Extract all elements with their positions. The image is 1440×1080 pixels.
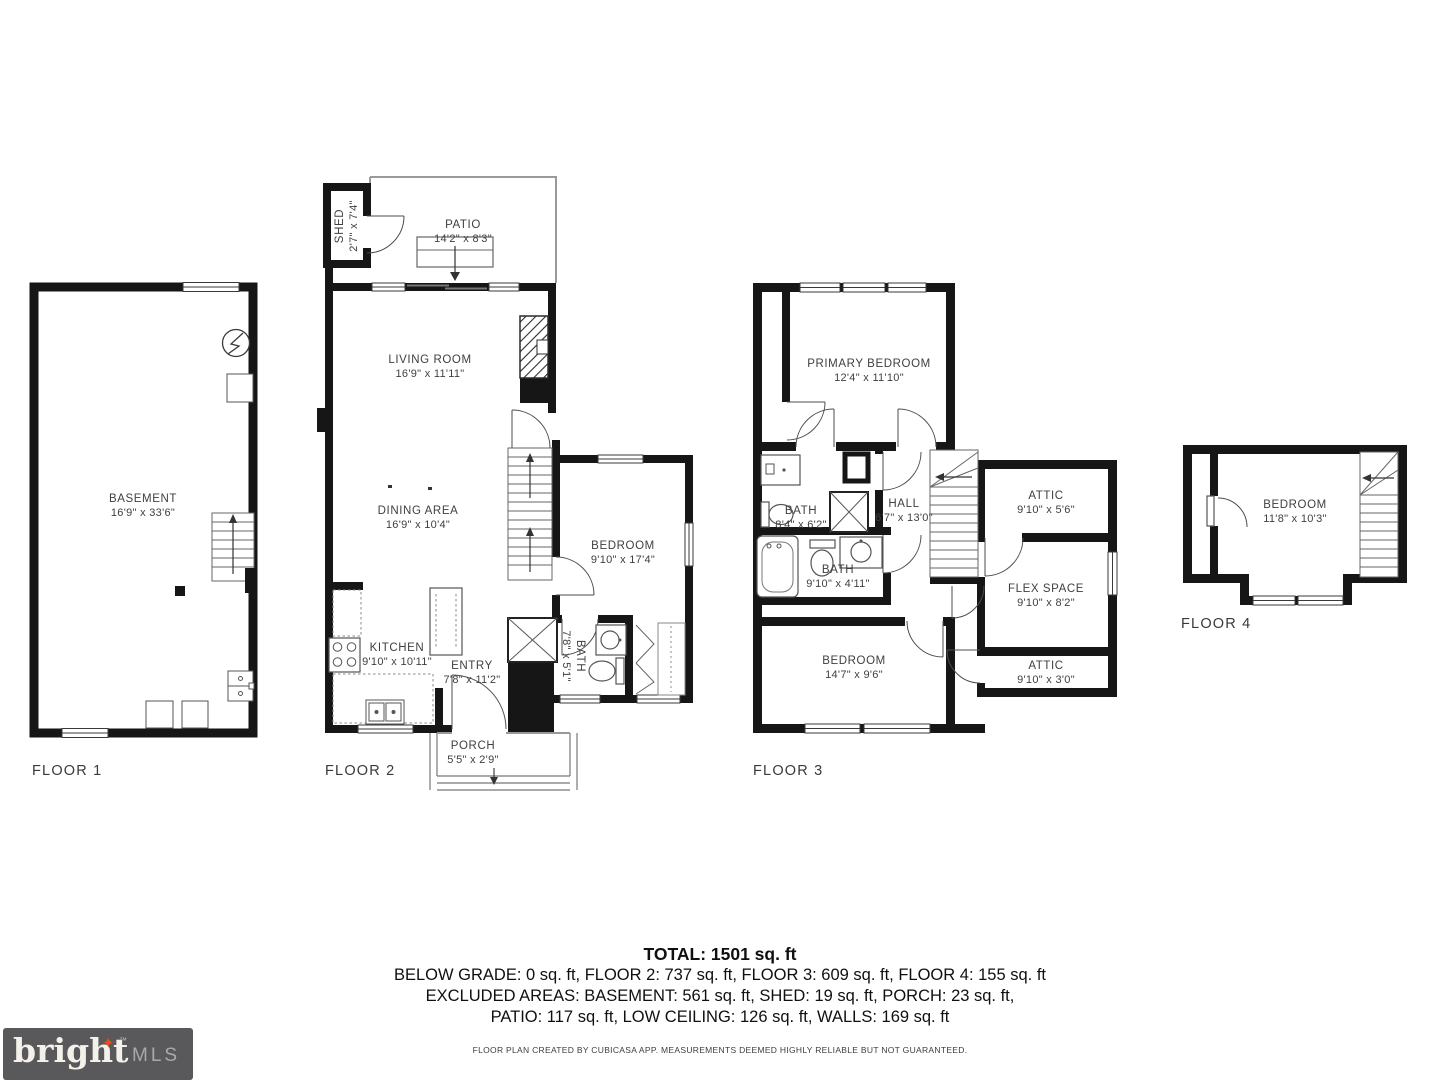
toilet-icon — [761, 502, 793, 527]
closet-icon — [636, 623, 685, 695]
toilet-icon — [589, 658, 624, 684]
bathtub-icon — [757, 536, 798, 597]
door-icon — [985, 538, 1023, 576]
door-icons — [367, 216, 598, 729]
window-icon — [1298, 596, 1343, 605]
stairs-icon — [212, 513, 257, 593]
electrical-panel-icon — [223, 330, 250, 357]
door-icon — [883, 452, 921, 490]
door-icon — [512, 410, 550, 448]
window-icon — [805, 724, 860, 733]
window-icon — [1253, 596, 1295, 605]
door-icon — [907, 621, 943, 657]
stairs-icon — [508, 448, 552, 580]
basement-walls — [34, 287, 253, 733]
floor-2-plan — [317, 177, 693, 790]
area-line-2: EXCLUDED AREAS: BASEMENT: 561 sq. ft, SH… — [0, 986, 1440, 1007]
ceiling-marker — [388, 485, 392, 488]
ceiling-marker — [428, 487, 432, 490]
window-icon — [183, 283, 239, 292]
floor-4-plan — [1183, 445, 1407, 605]
utility-sink-icon — [228, 671, 254, 701]
floorplan-canvas — [0, 0, 1440, 1080]
shower-icon — [508, 618, 557, 662]
disclaimer-text: FLOOR PLAN CREATED BY CUBICASA APP. MEAS… — [0, 1045, 1440, 1055]
window-icon — [637, 695, 680, 703]
window-icon — [800, 283, 840, 292]
vanity-icon — [761, 455, 800, 485]
bathroom-sink-icon — [596, 625, 626, 655]
door-icon — [883, 535, 921, 573]
window-icon — [843, 283, 885, 292]
total-area-text: TOTAL: 1501 sq. ft — [0, 944, 1440, 965]
door-icon — [562, 619, 598, 655]
appliance-icon — [146, 701, 173, 728]
window-icon — [685, 523, 693, 566]
window-icon — [372, 283, 405, 291]
floor-1-plan — [34, 283, 257, 738]
fireplace-icon — [520, 316, 548, 378]
window-icon — [489, 283, 519, 291]
support-post — [175, 586, 185, 596]
door-icon — [898, 409, 936, 447]
window-icon — [888, 283, 926, 292]
window-icon — [358, 725, 413, 733]
stairs-icon — [930, 450, 978, 577]
area-line-3: PATIO: 117 sq. ft, LOW CEILING: 126 sq. … — [0, 1007, 1440, 1028]
door-icon — [556, 557, 594, 595]
window-icon — [560, 695, 600, 703]
door-icon — [1207, 496, 1247, 527]
floorplan-page: FLOOR 1BASEMENT16'9" x 33'6"FLOOR 2SHED2… — [0, 0, 1440, 1080]
door-icon — [367, 216, 404, 253]
window-icon — [864, 724, 930, 733]
trademark-symbol: ™ — [119, 1036, 127, 1045]
kitchen-sink-icon — [366, 700, 404, 724]
floor-3-plan — [753, 283, 1117, 733]
area-summary: TOTAL: 1501 sq. ft BELOW GRADE: 0 sq. ft… — [0, 944, 1440, 1028]
appliance-icon — [182, 701, 208, 728]
storage-box — [227, 374, 253, 402]
sparkle-icon: ✦ — [102, 1034, 115, 1052]
porch-steps-icon — [430, 733, 577, 790]
stairs-icon — [1360, 452, 1398, 577]
mls-wordmark: MLS — [132, 1045, 180, 1067]
area-line-1: BELOW GRADE: 0 sq. ft, FLOOR 2: 737 sq. … — [0, 965, 1440, 986]
brightmls-logo: bright ✦ ™ MLS — [3, 1028, 193, 1080]
toilet-icon — [810, 540, 835, 576]
door-icon — [452, 675, 506, 729]
window-icon — [1108, 552, 1117, 595]
bathroom-sink-icon — [840, 537, 882, 568]
stove-icon — [329, 638, 360, 672]
window-icon — [598, 455, 643, 463]
shower-icon — [830, 492, 868, 532]
window-icon — [62, 729, 108, 738]
chimney-flue — [845, 454, 868, 481]
